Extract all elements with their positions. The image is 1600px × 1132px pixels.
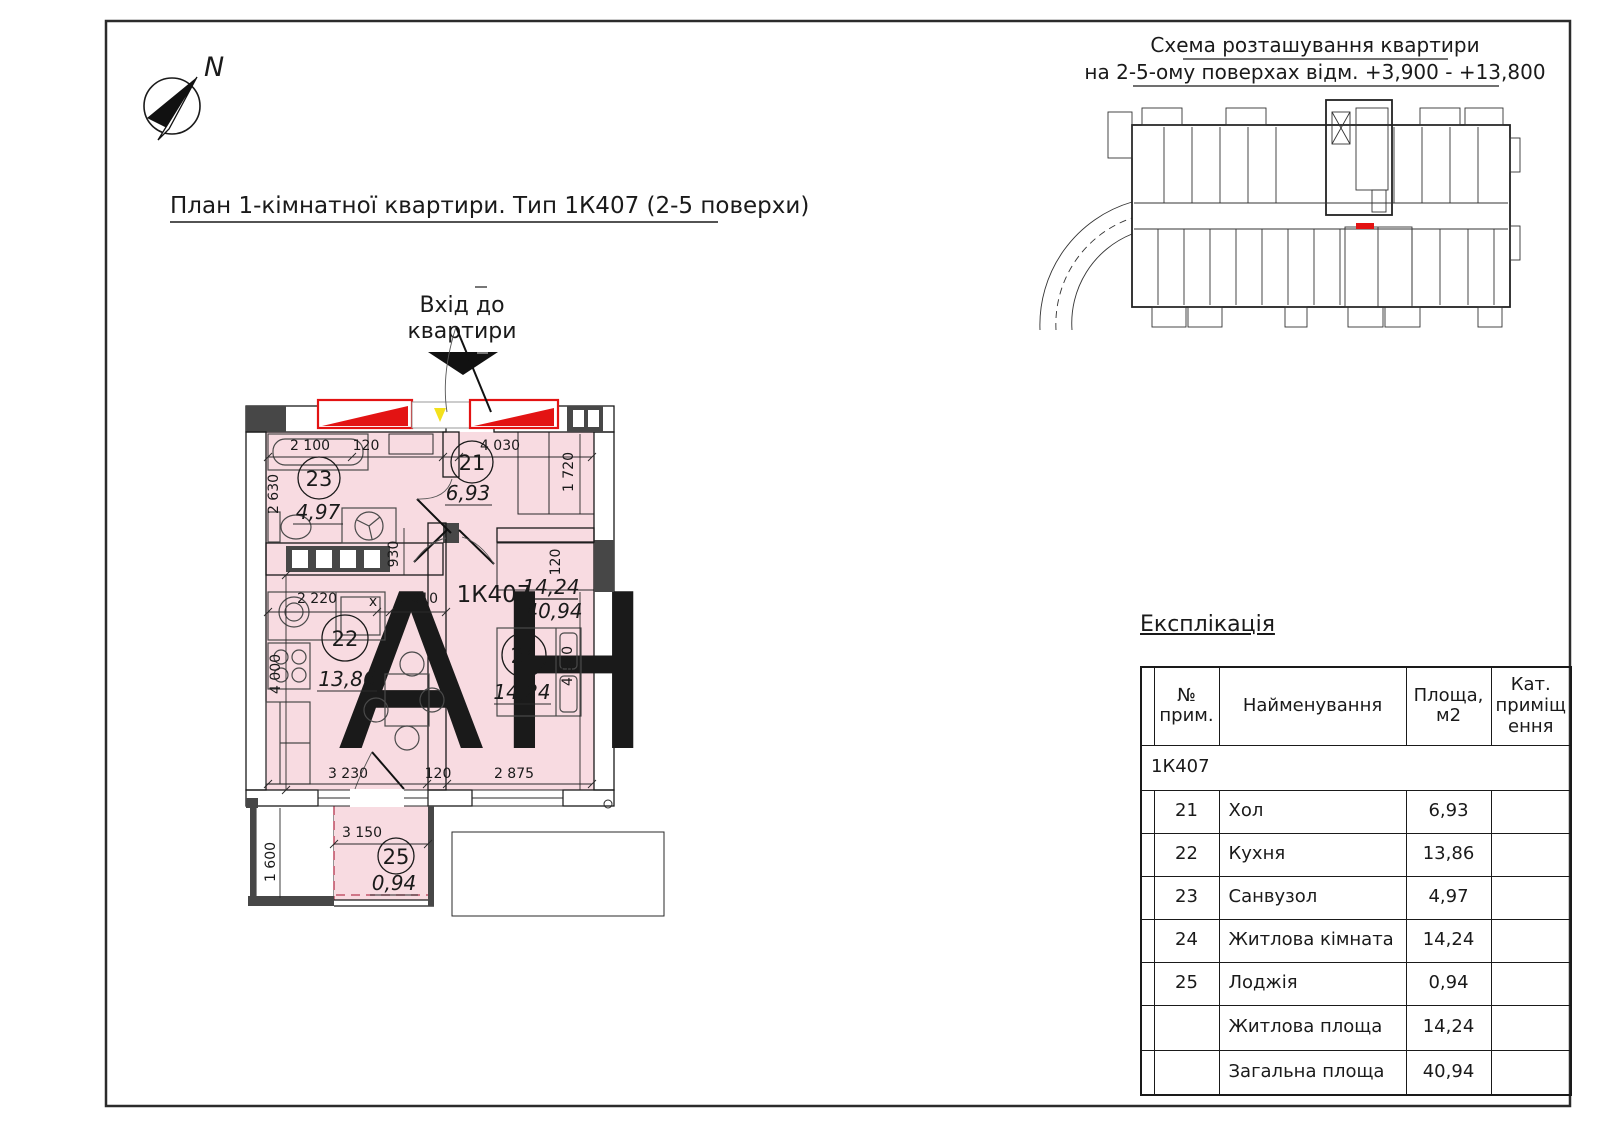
header-name: Найменування bbox=[1219, 667, 1406, 745]
header-cat: Кат. приміщ ення bbox=[1491, 667, 1571, 745]
dim-kitchen-width: 3 230 bbox=[328, 766, 368, 782]
dim-room-depth: 4 930 bbox=[560, 646, 576, 686]
header-strip bbox=[1141, 667, 1154, 745]
balconies bbox=[1152, 307, 1502, 327]
highlighted-balcony bbox=[1348, 307, 1383, 327]
room-22-area: 13,86 bbox=[318, 667, 375, 691]
dim-kitchen-x: x bbox=[369, 594, 377, 610]
explication-title: Експлікація bbox=[1140, 612, 1275, 637]
group-label: 1К407 bbox=[1141, 745, 1571, 790]
radiators bbox=[318, 400, 558, 428]
room-24-area: 14,24 bbox=[493, 680, 550, 704]
table-row: Житлова площа 14,24 bbox=[1141, 1005, 1571, 1050]
room-25-area: 0,94 bbox=[372, 871, 417, 895]
dim-loggia-width: 3 150 bbox=[342, 825, 382, 841]
north-arrow: N bbox=[144, 52, 224, 140]
room-24-number: 24 bbox=[511, 644, 538, 668]
table-header-row: № прим. Найменування Площа, м2 Кат. прим… bbox=[1141, 667, 1571, 745]
table-row: 22 Кухня 13,86 bbox=[1141, 833, 1571, 876]
location-scheme: Схема розташування квартири на 2-5-ому п… bbox=[1040, 33, 1546, 330]
header-num: № прим. bbox=[1154, 667, 1219, 745]
dim-room-width: 2 875 bbox=[494, 766, 534, 782]
plan-title-text: План 1-кімнатної квартири. Тип 1К407 (2-… bbox=[170, 193, 809, 219]
balcony-door-gap bbox=[350, 789, 404, 807]
floor-plan: АН bbox=[246, 327, 664, 916]
table-row: 23 Санвузол 4,97 bbox=[1141, 876, 1571, 919]
room-23-area: 4,97 bbox=[296, 500, 341, 524]
access-road bbox=[1040, 202, 1132, 330]
dim-hall-closet-thk: 120 bbox=[548, 549, 564, 576]
entrance-arrow-icon bbox=[428, 352, 498, 375]
table-row: 21 Хол 6,93 bbox=[1141, 790, 1571, 833]
apartment-living-area: 14,24 bbox=[522, 575, 579, 599]
dim-hall-closet-depth: 1 720 bbox=[561, 452, 577, 492]
header-area: Площа, м2 bbox=[1406, 667, 1491, 745]
apartment-code: 1К407 bbox=[457, 582, 532, 608]
room-21-area: 6,93 bbox=[446, 481, 491, 505]
dim-kitchen-a: 2 220 bbox=[297, 591, 337, 607]
room-22-number: 22 bbox=[332, 627, 359, 651]
north-label: N bbox=[204, 52, 224, 83]
dim-passage: 930 bbox=[386, 541, 402, 568]
room-25-number: 25 bbox=[383, 845, 410, 869]
room-23-number: 23 bbox=[306, 467, 333, 491]
dim-bath-gap: 120 bbox=[353, 438, 380, 454]
neighbour-balcony bbox=[452, 832, 664, 916]
table-group-row: 1К407 bbox=[1141, 745, 1571, 790]
table-row: 25 Лоджія 0,94 bbox=[1141, 962, 1571, 1005]
entrance-label: Вхід до квартири bbox=[407, 287, 516, 375]
room-21-number: 21 bbox=[459, 451, 486, 475]
dim-loggia-depth: 1 600 bbox=[263, 842, 279, 882]
plan-title: План 1-кімнатної квартири. Тип 1К407 (2-… bbox=[170, 193, 809, 222]
highlighted-apartment bbox=[1345, 227, 1412, 307]
stairs bbox=[1356, 108, 1388, 190]
table-row: 24 Житлова кімната 14,24 bbox=[1141, 919, 1571, 962]
building-outline bbox=[1132, 125, 1510, 307]
dim-kitchen-wall: 120 bbox=[425, 766, 452, 782]
explication-table: № прим. Найменування Площа, м2 Кат. прим… bbox=[1140, 666, 1572, 1096]
dim-bath-depth: 2 630 bbox=[266, 474, 282, 514]
table-row: Загальна площа 40,94 bbox=[1141, 1050, 1571, 1095]
dim-kitchen-depth: 4 000 bbox=[268, 654, 284, 694]
stair-tower bbox=[1326, 100, 1392, 215]
apartment-total-area: 40,94 bbox=[525, 599, 582, 623]
dim-bath-width: 2 100 bbox=[290, 438, 330, 454]
entrance-line1: Вхід до bbox=[419, 293, 504, 318]
scheme-title-1: Схема розташування квартири bbox=[1150, 33, 1479, 57]
dim-kitchen-b: 1 010 bbox=[398, 591, 438, 607]
scheme-title-2: на 2-5-ому поверхах відм. +3,900 - +13,8… bbox=[1084, 60, 1545, 84]
apartment-entry-mark bbox=[1356, 223, 1374, 229]
